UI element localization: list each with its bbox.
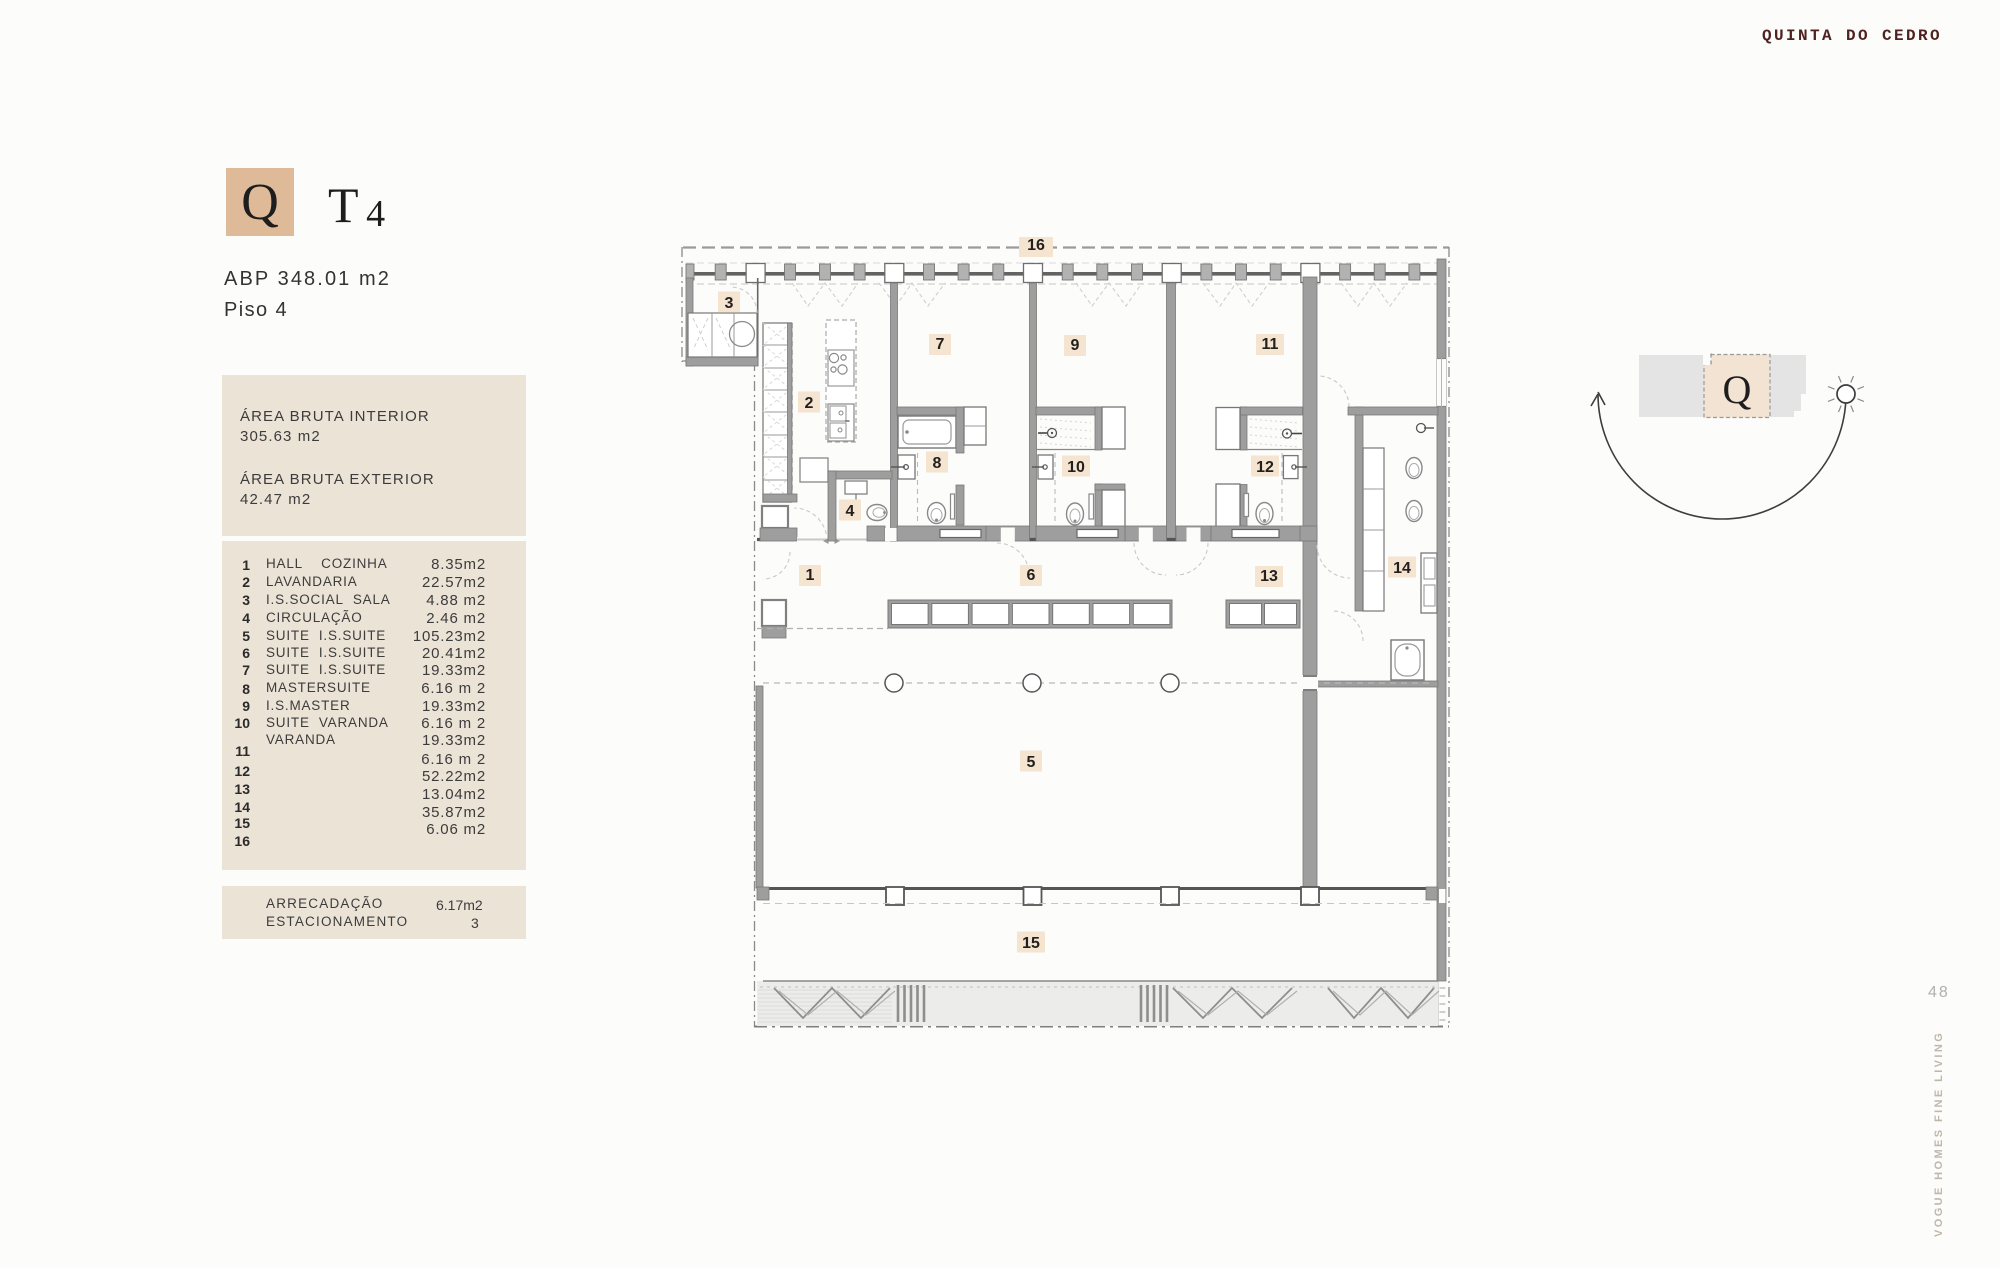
svg-text:Q: Q [1723, 367, 1752, 412]
